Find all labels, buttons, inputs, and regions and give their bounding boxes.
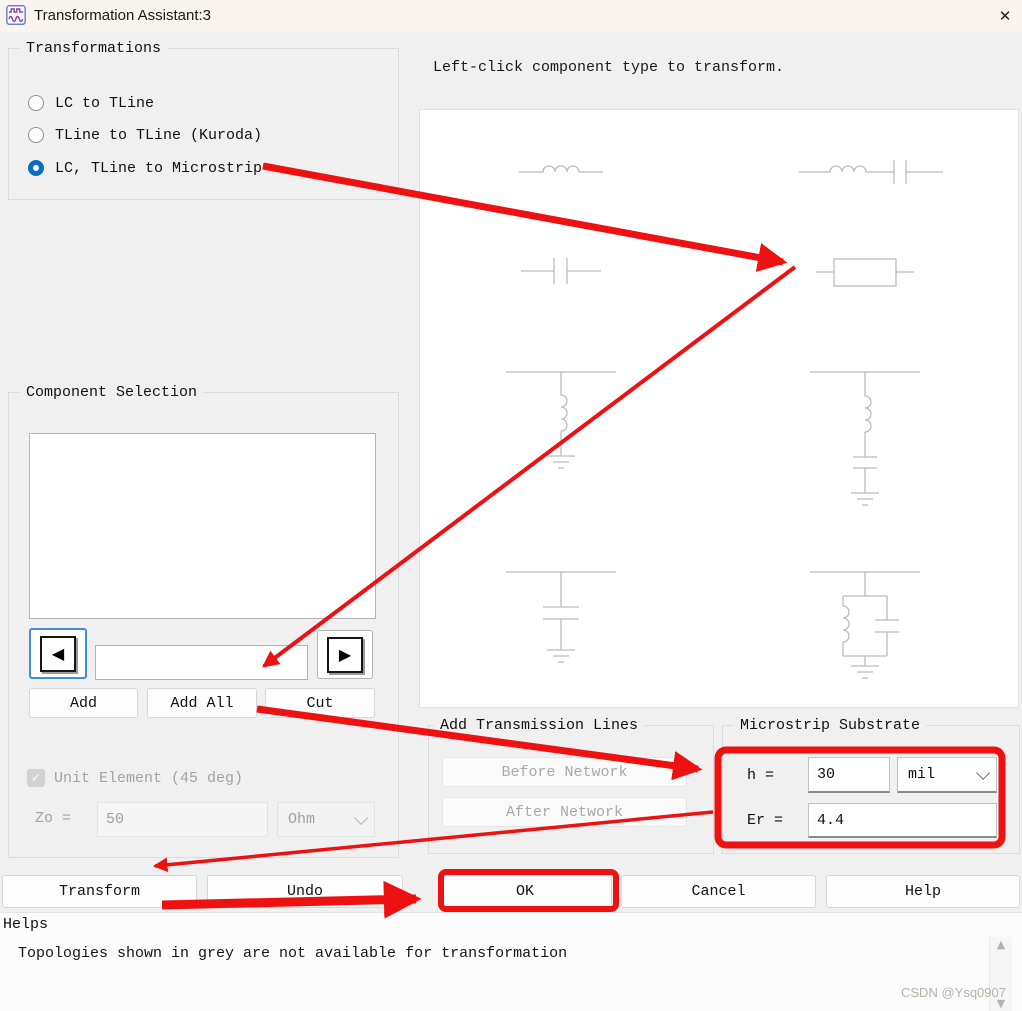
chevron-down-icon: [976, 765, 990, 779]
help-button[interactable]: Help: [826, 875, 1020, 908]
close-icon[interactable]: ✕: [993, 5, 1017, 27]
add-transmission-lines-title: Add Transmission Lines: [434, 717, 644, 734]
h-unit-value: mil: [908, 766, 935, 783]
right-arrow-frame: ▶: [327, 637, 363, 673]
transformation-assistant-window: Transformation Assistant:3 ✕ Transformat…: [0, 0, 1022, 1011]
symbol-series-inductor-capacitor[interactable]: [799, 160, 943, 184]
zo-field[interactable]: [97, 802, 268, 837]
add-all-button[interactable]: Add All: [147, 688, 257, 718]
cut-button[interactable]: Cut: [265, 688, 375, 718]
zo-unit-combo[interactable]: Ohm: [277, 802, 375, 837]
before-network-button[interactable]: Before Network: [442, 757, 687, 787]
radio-option-tline-to-tline-kuroda[interactable]: TLine to TLine (Kuroda): [28, 126, 262, 144]
helps-label: Helps: [3, 916, 48, 933]
chevron-down-icon: [354, 810, 368, 824]
add-button[interactable]: Add: [29, 688, 138, 718]
symbol-shunt-capacitor[interactable]: [506, 572, 616, 662]
er-field[interactable]: [808, 803, 997, 838]
component-selection-group-title: Component Selection: [20, 384, 203, 401]
cancel-button[interactable]: Cancel: [621, 875, 816, 908]
microstrip-substrate-title: Microstrip Substrate: [734, 717, 926, 734]
unit-element-label: Unit Element (45 deg): [54, 770, 243, 787]
scroll-up-icon[interactable]: ▲: [997, 939, 1005, 950]
topology-symbols: [420, 110, 1018, 707]
right-arrow-icon: ▶: [339, 647, 351, 663]
next-component-button[interactable]: ▶: [317, 630, 373, 679]
watermark: CSDN @Ysq0907: [901, 985, 1006, 1000]
symbol-shunt-inductor[interactable]: [506, 372, 616, 468]
radio-circle-icon[interactable]: [28, 127, 44, 143]
radio-circle-icon[interactable]: [28, 160, 44, 176]
radio-circle-icon[interactable]: [28, 95, 44, 111]
transformations-group-title: Transformations: [20, 40, 167, 57]
add-transmission-lines-group: [428, 725, 714, 854]
title-bar: Transformation Assistant:3 ✕: [0, 0, 1022, 32]
component-nav-field[interactable]: [95, 645, 308, 680]
radio-option-lc-tline-to-microstrip[interactable]: LC, TLine to Microstrip: [28, 159, 262, 177]
h-field[interactable]: [808, 757, 890, 793]
helps-panel: Helps Topologies shown in grey are not a…: [0, 912, 1022, 1011]
undo-button[interactable]: Undo: [207, 875, 403, 908]
radio-option-lc-to-tline[interactable]: LC to TLine: [28, 94, 154, 112]
window-title: Transformation Assistant:3: [34, 7, 211, 24]
app-filter-icon: [6, 5, 26, 25]
transform-button[interactable]: Transform: [2, 875, 197, 908]
unit-element-checkbox[interactable]: ✓: [27, 769, 45, 787]
canvas-instruction: Left-click component type to transform.: [433, 59, 784, 76]
h-label: h =: [747, 767, 774, 784]
transformations-group: [8, 48, 399, 200]
symbol-series-inductor[interactable]: [519, 166, 603, 172]
symbol-series-capacitor[interactable]: [521, 258, 601, 284]
after-network-button[interactable]: After Network: [442, 797, 687, 827]
ok-button[interactable]: OK: [438, 875, 612, 908]
radio-label: TLine to TLine (Kuroda): [55, 127, 262, 144]
helps-text: Topologies shown in grey are not availab…: [18, 945, 567, 962]
zo-label: Zo =: [35, 810, 71, 827]
check-icon: ✓: [31, 772, 42, 785]
symbol-shunt-parallel-lc[interactable]: [810, 572, 920, 678]
left-arrow-frame: ◀: [40, 636, 76, 672]
h-unit-combo[interactable]: mil: [897, 757, 997, 793]
prev-component-button[interactable]: ◀: [29, 628, 87, 679]
er-label: Er =: [747, 812, 783, 829]
radio-label: LC, TLine to Microstrip: [55, 160, 262, 177]
symbol-series-tline[interactable]: [816, 259, 914, 286]
component-listbox[interactable]: [29, 433, 376, 619]
zo-unit-value: Ohm: [288, 811, 315, 828]
radio-label: LC to TLine: [55, 95, 154, 112]
symbol-shunt-series-lc[interactable]: [810, 372, 920, 505]
topology-canvas[interactable]: [419, 109, 1019, 708]
left-arrow-icon: ◀: [52, 646, 64, 662]
